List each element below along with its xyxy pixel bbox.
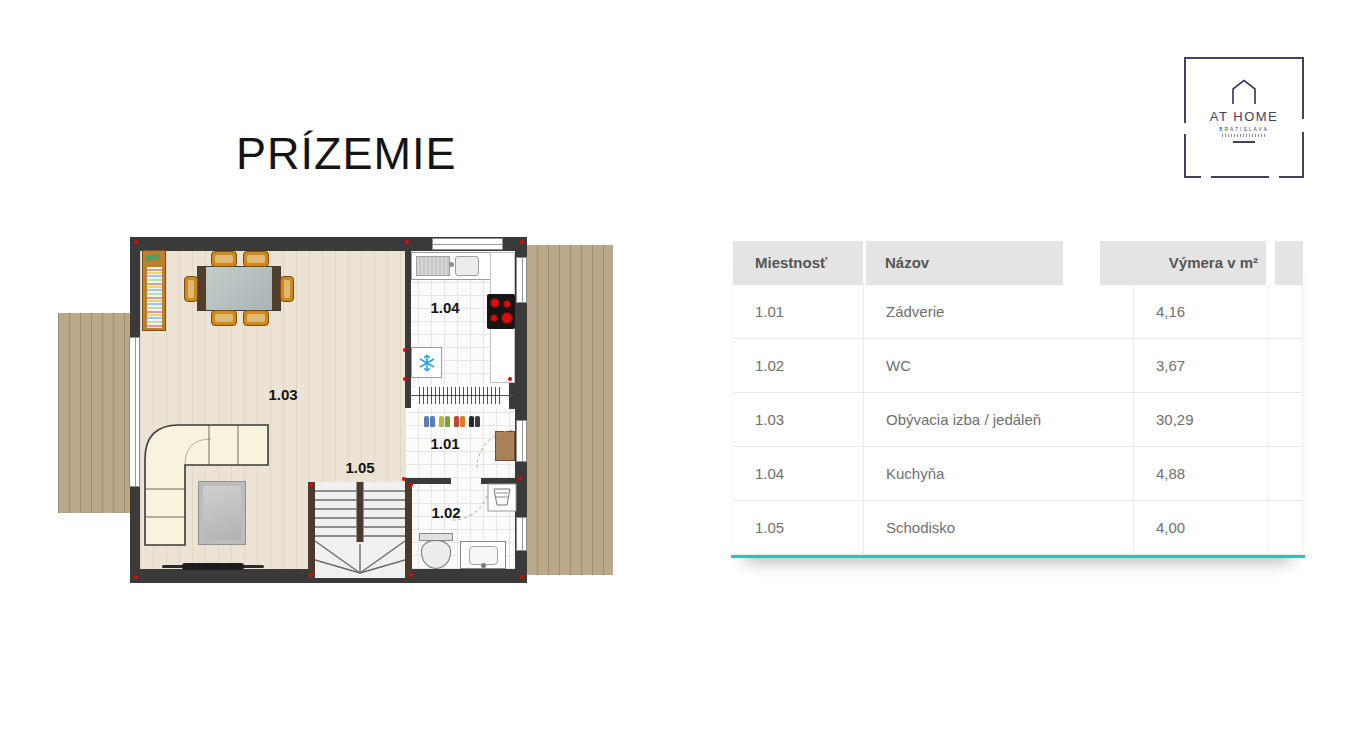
column-header-vymera: Výmera v m² — [1100, 241, 1266, 285]
room-label-hall: 1.01 — [417, 435, 473, 452]
corner-marker — [409, 483, 413, 487]
company-logo: AT HOME BRATISLAVA — [1184, 57, 1304, 178]
room-table: Miestnosť Názov Výmera v m² 1.01 Zádveri… — [733, 241, 1303, 558]
cell-spacer — [1268, 339, 1303, 392]
table-accent-line — [731, 555, 1305, 558]
cell-spacer — [1268, 393, 1303, 446]
logo-border-gap — [1201, 176, 1211, 178]
cell-room-id: 1.01 — [733, 285, 863, 338]
corner-marker — [309, 483, 313, 487]
table-row: 1.05 Schodisko 4,00 — [733, 501, 1303, 555]
cell-room-id: 1.03 — [733, 393, 863, 446]
cell-spacer — [1268, 285, 1303, 338]
cell-room-area: 4,16 — [1133, 285, 1268, 338]
cell-spacer — [1268, 501, 1303, 554]
table-row: 1.02 WC 3,67 — [733, 339, 1303, 393]
corner-marker — [134, 240, 138, 244]
header-gap — [1063, 241, 1100, 285]
plan-overlay — [58, 237, 614, 583]
door-arc — [477, 430, 515, 468]
logo-microtext — [1222, 134, 1266, 137]
corner-marker — [518, 477, 522, 481]
column-header-nazov: Názov — [866, 241, 1063, 285]
corner-marker — [508, 377, 512, 381]
staircase — [308, 482, 412, 578]
cell-room-name: Zádverie — [863, 285, 1133, 338]
corner-marker — [309, 573, 313, 577]
table-row: 1.04 Kuchyňa 4,88 — [733, 447, 1303, 501]
room-label-wc: 1.02 — [418, 504, 474, 521]
corner-marker — [405, 240, 409, 244]
logo-divider — [1233, 141, 1255, 143]
corner-marker — [403, 348, 407, 352]
cell-room-id: 1.02 — [733, 339, 863, 392]
corner-marker — [402, 477, 406, 481]
logo-subtitle: BRATISLAVA — [1219, 126, 1269, 132]
cell-room-area: 4,00 — [1133, 501, 1268, 554]
logo-content: AT HOME BRATISLAVA — [1186, 59, 1302, 176]
room-label-stairs: 1.05 — [332, 459, 388, 476]
cell-room-name: Kuchyňa — [863, 447, 1133, 500]
cell-room-area: 4,88 — [1133, 447, 1268, 500]
column-header-miestnost: Miestnosť — [733, 241, 863, 285]
page: { "page": { "title": "PRÍZEMIE" }, "logo… — [0, 0, 1350, 756]
cell-room-name: WC — [863, 339, 1133, 392]
table-row: 1.03 Obývacia izba / jedáleň 30,29 — [733, 393, 1303, 447]
cell-room-area: 3,67 — [1133, 339, 1268, 392]
cell-room-id: 1.04 — [733, 447, 863, 500]
cell-spacer — [1268, 447, 1303, 500]
cell-room-name: Obývacia izba / jedáleň — [863, 393, 1133, 446]
logo-title: AT HOME — [1210, 109, 1279, 124]
header-gap — [1266, 241, 1275, 285]
page-title: PRÍZEMIE — [236, 128, 457, 180]
table-row: 1.01 Zádverie 4,16 — [733, 285, 1303, 339]
house-icon — [1230, 79, 1258, 105]
room-label-kitchen: 1.04 — [417, 299, 473, 316]
header-spacer-cell — [1275, 241, 1303, 285]
cell-room-name: Schodisko — [863, 501, 1133, 554]
cell-room-id: 1.05 — [733, 501, 863, 554]
logo-border-gap — [1269, 176, 1279, 178]
corner-marker — [520, 575, 524, 579]
corner-marker — [409, 573, 413, 577]
room-label-living: 1.03 — [255, 386, 311, 403]
corner-marker — [520, 240, 524, 244]
corner-marker — [403, 377, 407, 381]
laundry-basket — [488, 484, 516, 511]
cell-room-area: 30,29 — [1133, 393, 1268, 446]
logo-border-gap — [1302, 119, 1304, 132]
floor-plan: 1.03 1.04 1.01 1.02 1.05 — [58, 237, 614, 583]
table-header: Miestnosť Názov Výmera v m² — [733, 241, 1303, 285]
corner-marker — [134, 575, 138, 579]
corner-sofa — [145, 425, 268, 545]
